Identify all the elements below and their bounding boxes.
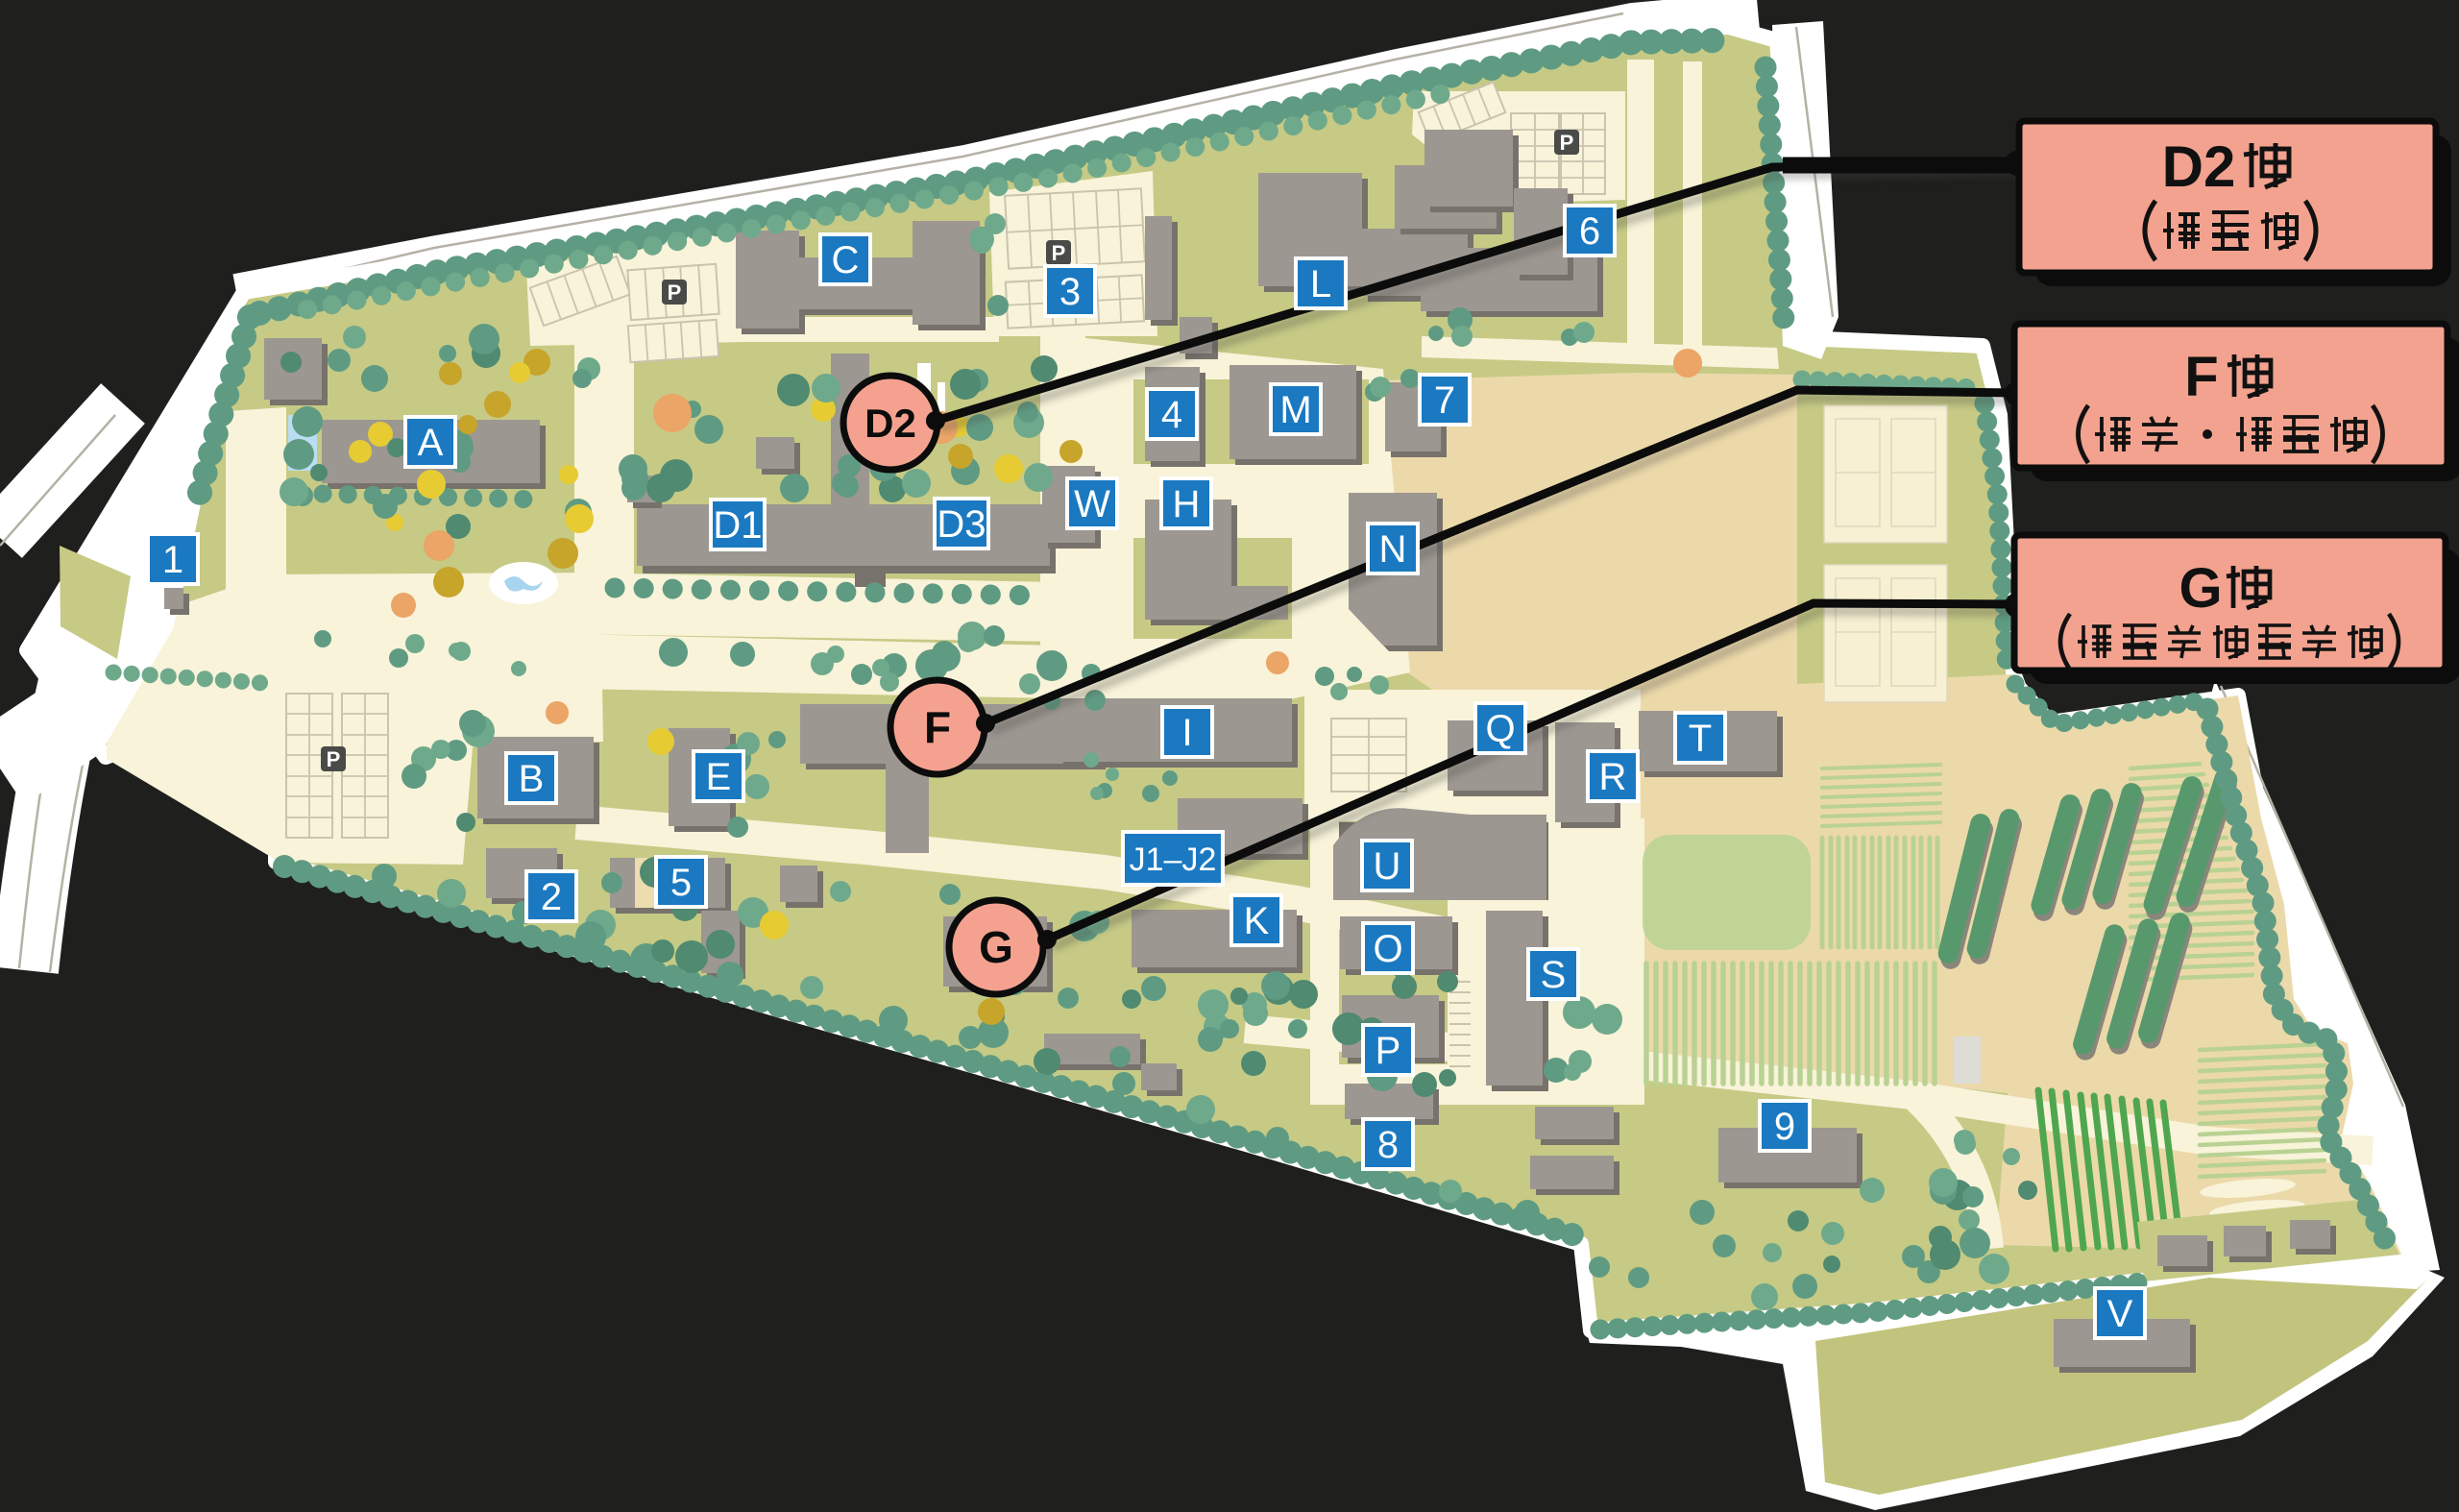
svg-text:A: A — [418, 422, 444, 464]
svg-text:U: U — [1374, 845, 1401, 888]
svg-text:5: 5 — [670, 862, 692, 904]
svg-text:6: 6 — [1579, 210, 1600, 253]
svg-text:4: 4 — [1161, 394, 1182, 436]
svg-text:F: F — [2184, 346, 2218, 408]
svg-text:O: O — [1373, 928, 1402, 970]
svg-text:V: V — [2107, 1293, 2133, 1335]
svg-text:T: T — [1689, 718, 1712, 760]
svg-text:P: P — [1376, 1030, 1401, 1072]
svg-text:H: H — [1173, 483, 1201, 525]
svg-text:P: P — [668, 280, 682, 305]
svg-text:R: R — [1599, 756, 1627, 798]
svg-text:2: 2 — [541, 876, 562, 918]
svg-text:S: S — [1541, 954, 1567, 996]
svg-text:D2: D2 — [864, 401, 916, 446]
svg-text:Q: Q — [1485, 708, 1515, 750]
svg-text:M: M — [1279, 389, 1311, 431]
svg-text:3: 3 — [1059, 271, 1081, 313]
svg-text:C: C — [832, 239, 860, 281]
svg-text:K: K — [1244, 900, 1270, 942]
svg-text:1: 1 — [162, 539, 183, 581]
svg-text:F: F — [924, 702, 951, 752]
svg-text:B: B — [519, 758, 545, 800]
svg-text:J1–J2: J1–J2 — [1130, 841, 1217, 878]
svg-text:8: 8 — [1377, 1124, 1399, 1166]
svg-text:G: G — [979, 922, 1013, 972]
svg-text:E: E — [706, 756, 732, 798]
svg-text:I: I — [1181, 712, 1192, 754]
svg-text:7: 7 — [1434, 379, 1455, 422]
svg-text:N: N — [1379, 528, 1407, 571]
svg-text:P: P — [1052, 241, 1066, 265]
svg-text:W: W — [1074, 483, 1110, 525]
svg-text:P: P — [1560, 131, 1574, 155]
svg-text:D3: D3 — [937, 503, 986, 546]
svg-text:P: P — [327, 747, 341, 771]
svg-text:G: G — [2179, 557, 2222, 620]
svg-text:D1: D1 — [713, 504, 762, 547]
svg-text:L: L — [1310, 263, 1331, 305]
svg-text:9: 9 — [1774, 1106, 1795, 1148]
svg-text:D2: D2 — [2162, 134, 2236, 199]
